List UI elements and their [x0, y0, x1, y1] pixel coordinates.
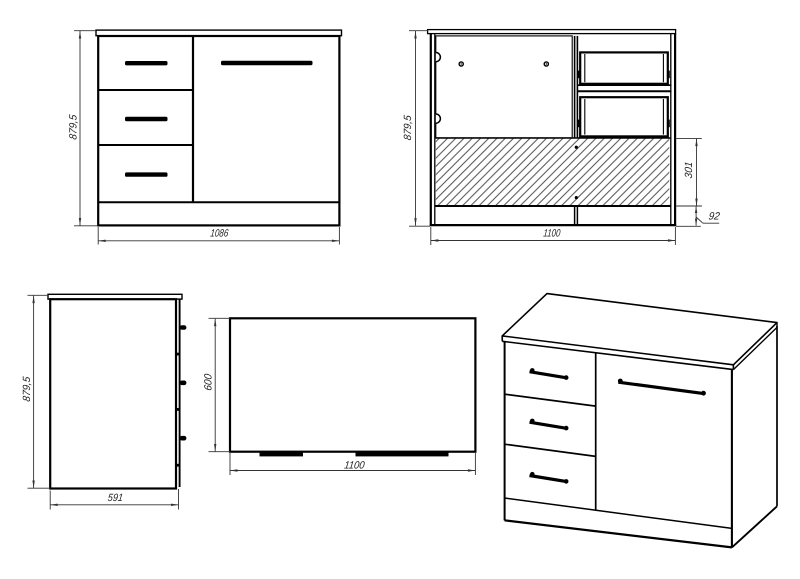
svg-text:600: 600: [203, 373, 214, 391]
svg-text:879,5: 879,5: [68, 114, 79, 141]
svg-text:1086: 1086: [210, 226, 230, 238]
svg-text:879,5: 879,5: [22, 376, 33, 403]
svg-text:1100: 1100: [343, 460, 365, 472]
svg-text:1100: 1100: [543, 228, 562, 239]
svg-text:879,5: 879,5: [403, 114, 414, 141]
svg-text:92: 92: [708, 211, 721, 222]
svg-text:591: 591: [107, 492, 124, 504]
svg-text:301: 301: [684, 161, 695, 179]
